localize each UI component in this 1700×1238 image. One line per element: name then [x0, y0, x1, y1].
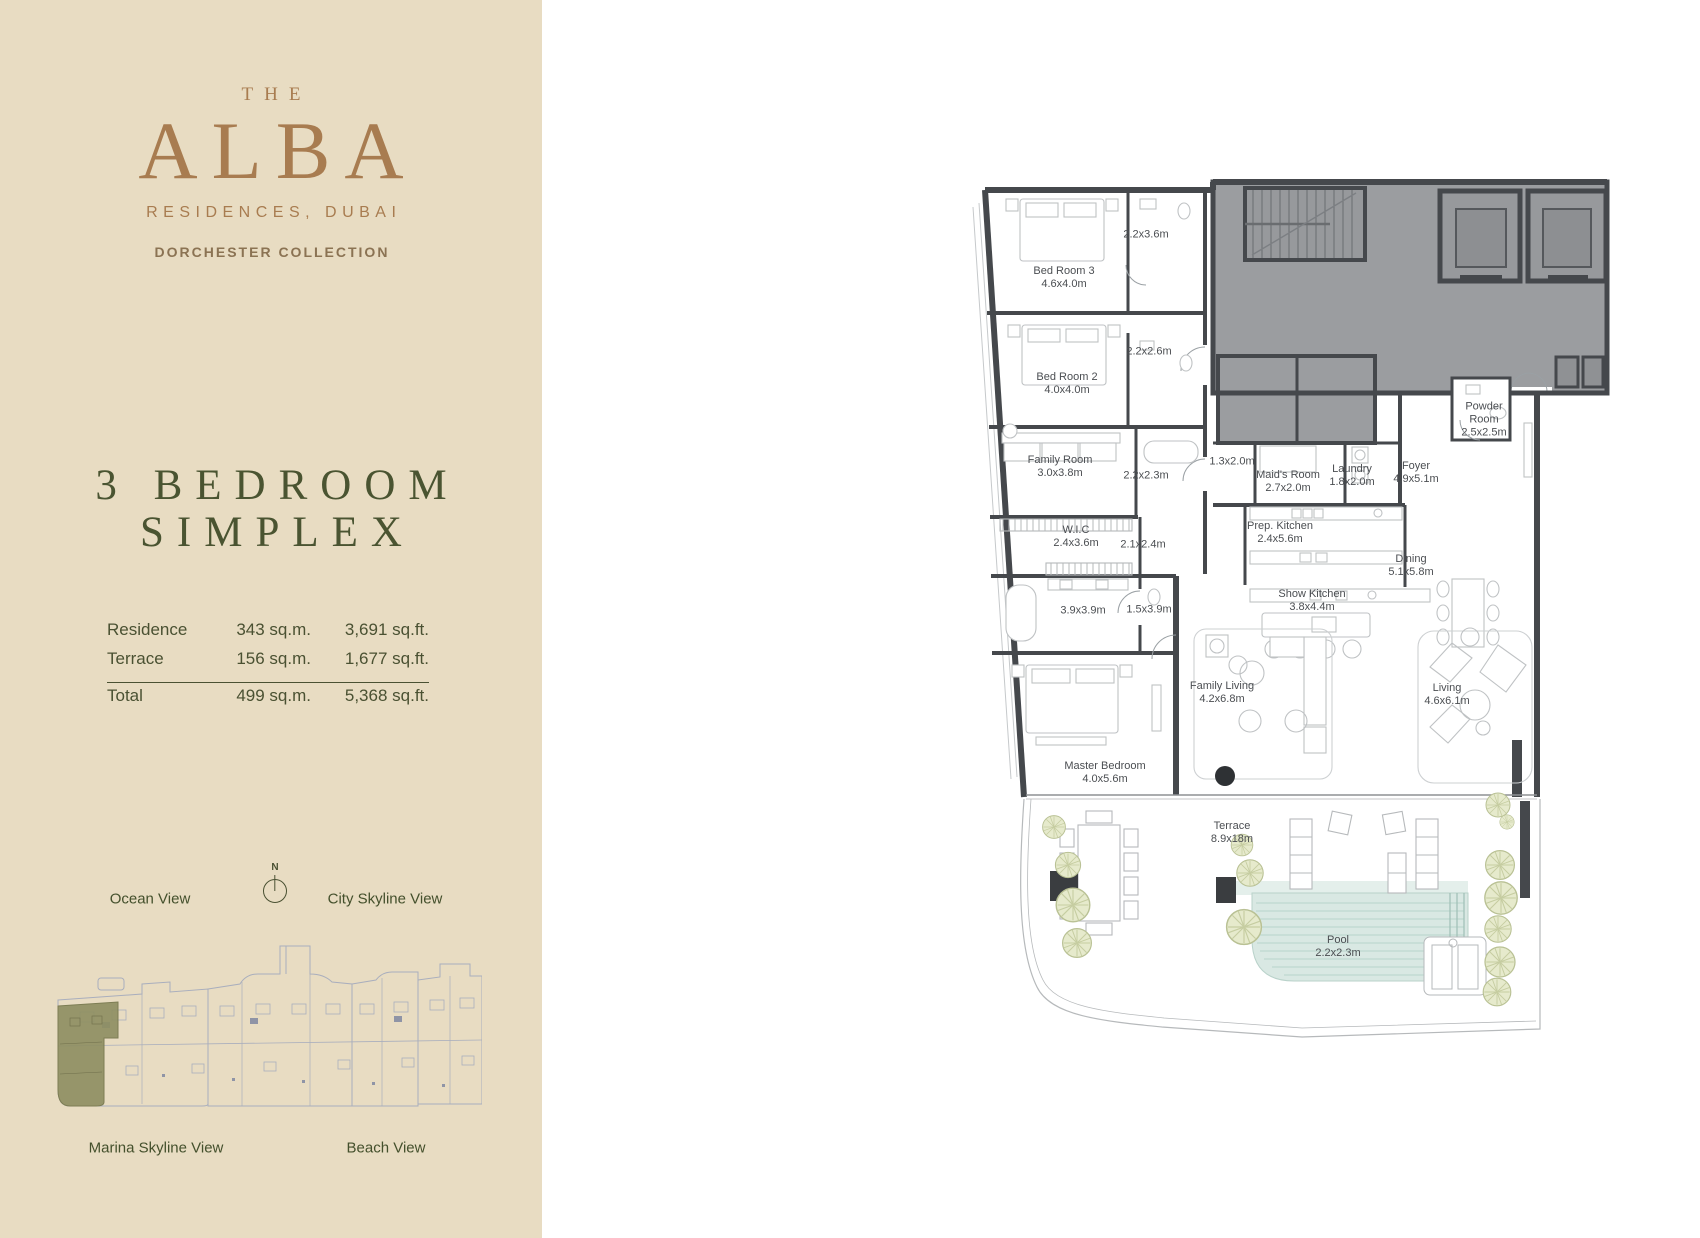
- brochure-page: { "brand": { "the": "THE", "name": "ALBA…: [0, 0, 1700, 1238]
- mini-plan-outlines: [58, 946, 482, 1106]
- row-label: Terrace: [107, 649, 219, 669]
- room-label-bath-a: 2.2x3.6m: [1123, 229, 1168, 242]
- pool-deck: [1424, 937, 1486, 995]
- brand-collection: DORCHESTER COLLECTION: [0, 244, 542, 260]
- room-label-family-living: Family Living4.2x6.8m: [1190, 680, 1254, 706]
- compass-north-label: N: [271, 862, 278, 873]
- unit-title-line1: 3 BEDROOM: [0, 462, 542, 509]
- room-label-family-room: Family Room3.0x3.8m: [1028, 454, 1093, 480]
- room-label-master-bedroom: Master Bedroom4.0x5.6m: [1064, 760, 1145, 786]
- room-label-pool: Pool2.2x2.3m: [1315, 934, 1360, 960]
- room-label-shower: 1.5x3.9m: [1126, 604, 1171, 617]
- room-label-show-kitchen: Show Kitchen3.8x4.4m: [1278, 588, 1345, 614]
- compass-icon: N: [263, 879, 287, 903]
- room-label-bath-b: 2.2x2.6m: [1126, 346, 1171, 359]
- room-label-bedroom2: Bed Room 24.0x4.0m: [1036, 371, 1097, 397]
- row-sqft: 5,368 sq.ft.: [311, 686, 429, 706]
- room-label-terrace: Terrace8.9x18m: [1211, 820, 1253, 846]
- room-label-dining: Dining5.1x5.8m: [1388, 553, 1433, 579]
- unit-title: 3 BEDROOM SIMPLEX: [0, 462, 542, 556]
- elevator-icon: [1440, 191, 1520, 282]
- compass-circle: [263, 879, 287, 903]
- sidebar-panel: THE ALBA RESIDENCES, DUBAI DORCHESTER CO…: [0, 0, 542, 1238]
- core-service-room: [1583, 357, 1603, 387]
- brand-name: ALBA: [0, 114, 542, 188]
- view-label-marina: Marina Skyline View: [89, 1140, 224, 1157]
- view-label-city: City Skyline View: [328, 891, 443, 908]
- row-sqm: 156 sq.m.: [219, 649, 311, 669]
- room-label-bath-c: 2.2x2.3m: [1123, 470, 1168, 483]
- row-sqm: 343 sq.m.: [219, 620, 311, 640]
- room-label-living: Living4.6x6.1m: [1424, 682, 1469, 708]
- area-table: Residence 343 sq.m. 3,691 sq.ft. Terrace…: [107, 620, 429, 715]
- row-sqft: 3,691 sq.ft.: [311, 620, 429, 640]
- row-sqft: 1,677 sq.ft.: [311, 649, 429, 669]
- elevator-icon: [1528, 191, 1606, 282]
- room-label-maids-room: Maid's Room2.7x2.0m: [1256, 469, 1320, 495]
- room-label-store: 1.3x2.0m: [1209, 456, 1254, 469]
- room-label-wic: W.I.C2.4x3.6m: [1053, 524, 1098, 550]
- room-label-powder-room: Powder Room2.5x2.5m: [1454, 401, 1514, 440]
- room-label-laundry: Laundry1.8x2.0m: [1329, 463, 1374, 489]
- room-label-foyer: Foyer4.9x5.1m: [1393, 460, 1438, 486]
- table-row-residence: Residence 343 sq.m. 3,691 sq.ft.: [107, 620, 429, 649]
- room-label-master-bath: 3.9x3.9m: [1060, 605, 1105, 618]
- floor-plan: Bed Room 34.6x4.0m 2.2x3.6m Bed Room 24.…: [900, 165, 1620, 1045]
- core-service-room: [1556, 357, 1578, 387]
- unit-title-line2: SIMPLEX: [0, 509, 542, 556]
- brand-subtitle: RESIDENCES, DUBAI: [0, 204, 542, 222]
- stairs-icon: [1245, 188, 1365, 260]
- structural-column: [1215, 766, 1235, 786]
- row-label: Residence: [107, 620, 219, 640]
- floor-plan-drawing: [900, 165, 1620, 1045]
- brand-the: THE: [0, 84, 542, 106]
- room-label-prep-kitchen: Prep. Kitchen2.4x5.6m: [1247, 520, 1313, 546]
- row-sqm: 499 sq.m.: [219, 686, 311, 706]
- mini-site-plan: [42, 934, 482, 1110]
- table-divider: [107, 682, 429, 683]
- planter: [1216, 877, 1236, 903]
- room-label-bedroom3: Bed Room 34.6x4.0m: [1033, 265, 1094, 291]
- brand-logo: THE ALBA RESIDENCES, DUBAI DORCHESTER CO…: [0, 84, 542, 260]
- view-label-beach: Beach View: [347, 1140, 426, 1157]
- table-row-total: Total 499 sq.m. 5,368 sq.ft.: [107, 686, 429, 715]
- view-label-ocean: Ocean View: [110, 891, 191, 908]
- row-label: Total: [107, 686, 219, 706]
- room-label-hall: 2.1x2.4m: [1120, 539, 1165, 552]
- mini-plan-highlighted-unit: [58, 1002, 118, 1106]
- table-row-terrace: Terrace 156 sq.m. 1,677 sq.ft.: [107, 649, 429, 678]
